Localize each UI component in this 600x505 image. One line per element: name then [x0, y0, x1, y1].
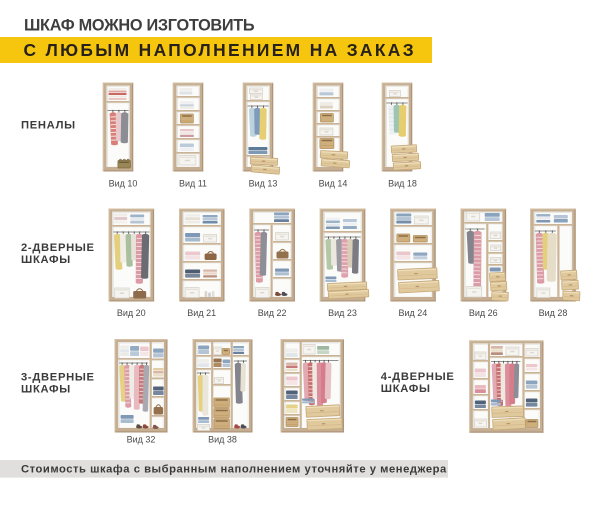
svg-text:С ЛЮБЫМ НАПОЛНЕНИЕМ НА ЗАКАЗ: С ЛЮБЫМ НАПОЛНЕНИЕМ НА ЗАКАЗ [24, 40, 416, 60]
svg-text:ШКАФЫ: ШКАФЫ [21, 383, 71, 395]
svg-text:Вид 23: Вид 23 [328, 308, 357, 318]
svg-text:Вид 22: Вид 22 [258, 308, 287, 318]
svg-text:Вид 24: Вид 24 [399, 308, 428, 318]
svg-text:Вид 32: Вид 32 [127, 435, 156, 445]
svg-text:ШКАФЫ: ШКАФЫ [21, 254, 71, 266]
svg-text:Стоимость шкафа с выбранным на: Стоимость шкафа с выбранным наполнением … [21, 464, 447, 476]
svg-text:Вид 28: Вид 28 [539, 308, 568, 318]
svg-text:2-ДВЕРНЫЕ: 2-ДВЕРНЫЕ [21, 242, 95, 254]
svg-text:ШКАФЫ: ШКАФЫ [381, 383, 431, 395]
svg-text:Вид 20: Вид 20 [117, 308, 146, 318]
svg-text:Вид 18: Вид 18 [388, 179, 417, 189]
svg-text:Вид 14: Вид 14 [319, 179, 348, 189]
svg-text:4-ДВЕРНЫЕ: 4-ДВЕРНЫЕ [381, 371, 455, 383]
svg-text:Вид 10: Вид 10 [109, 179, 138, 189]
svg-text:Вид 13: Вид 13 [249, 179, 278, 189]
svg-text:ШКАФ МОЖНО ИЗГОТОВИТЬ: ШКАФ МОЖНО ИЗГОТОВИТЬ [24, 17, 255, 35]
svg-text:Вид 38: Вид 38 [208, 435, 237, 445]
svg-text:3-ДВЕРНЫЕ: 3-ДВЕРНЫЕ [21, 371, 95, 383]
svg-text:ПЕНАЛЫ: ПЕНАЛЫ [21, 120, 76, 132]
svg-text:Вид 21: Вид 21 [187, 308, 216, 318]
svg-text:Вид 11: Вид 11 [179, 179, 207, 189]
svg-text:Вид 26: Вид 26 [469, 308, 498, 318]
